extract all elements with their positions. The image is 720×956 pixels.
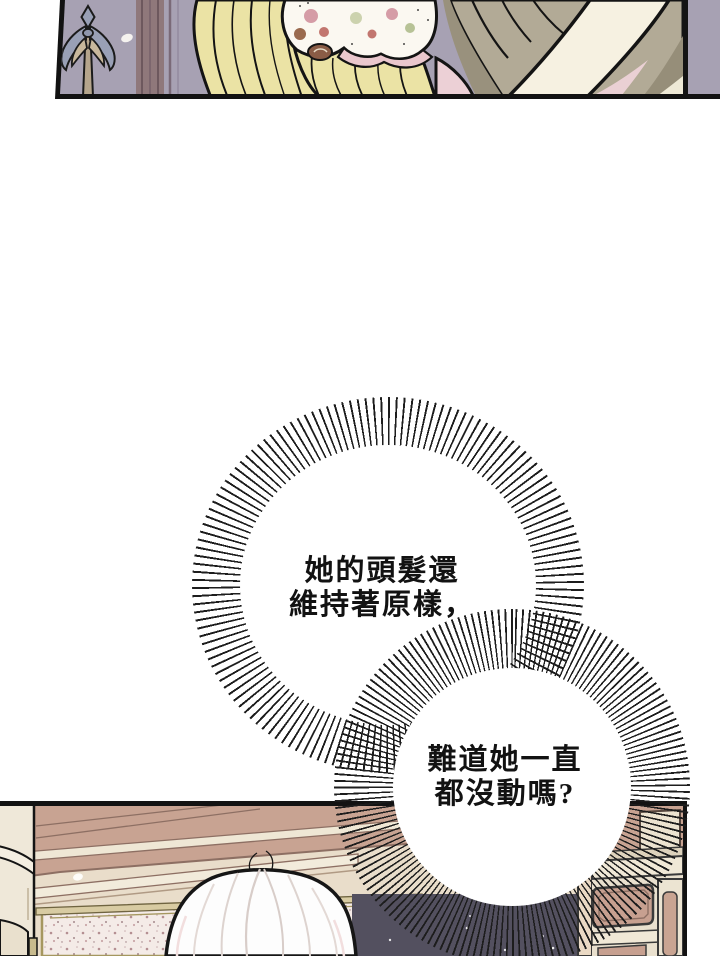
panel-top-artwork: [0, 0, 720, 100]
left-column: [0, 806, 37, 956]
bubble1-text: 她的頭髮還 維持著原樣，: [232, 554, 532, 622]
comic-page: 她的頭髮還 維持著原樣， 難道她一直 都沒動嗎?: [0, 0, 720, 956]
bubble1-line2: 維持著原樣，: [232, 588, 532, 622]
wall-corner-line: [683, 0, 688, 100]
bubble2-text: 難道她一直 都沒動嗎?: [355, 743, 655, 811]
bubble2-line2: 都沒動嗎?: [355, 777, 655, 811]
bubble2-line1: 難道她一直: [355, 743, 655, 777]
bubble1-line1: 她的頭髮還: [232, 554, 532, 588]
